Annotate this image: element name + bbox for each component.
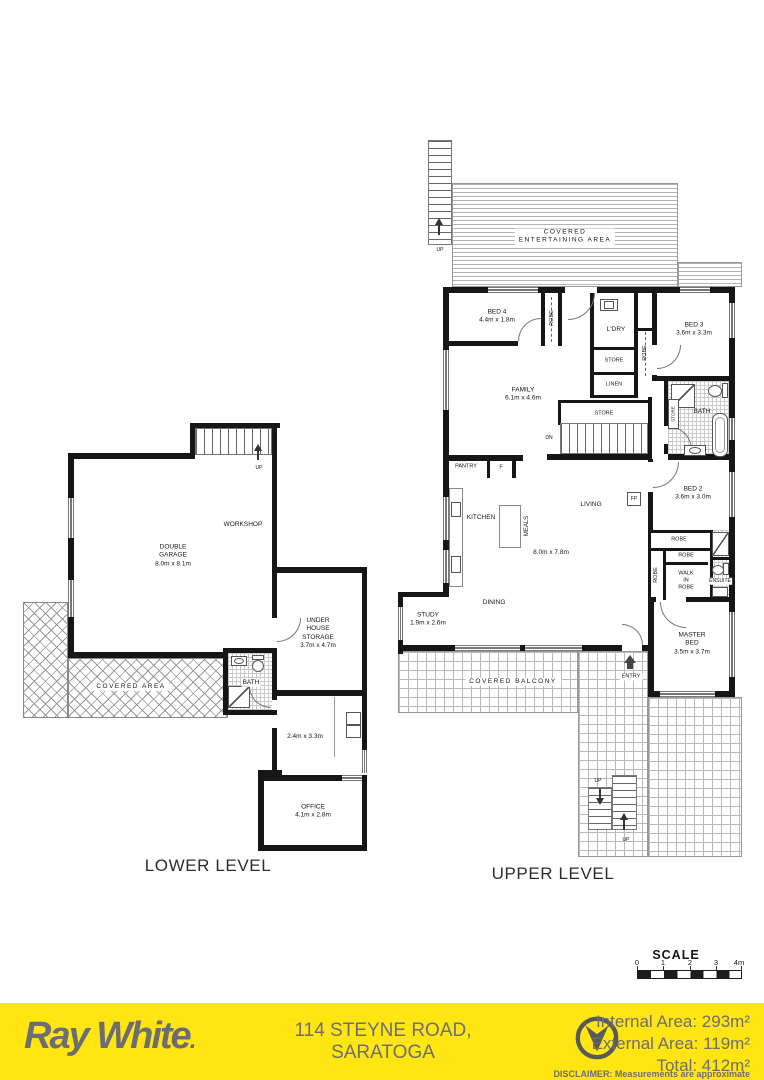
wall bbox=[443, 455, 523, 461]
window bbox=[680, 287, 710, 293]
down-arrow-stem bbox=[599, 789, 601, 798]
disclaimer-text: DISCLAIMER: Measurements are approximate bbox=[553, 1069, 750, 1079]
family-label: FAMILY 6.1m x 4.6m bbox=[505, 387, 541, 404]
wall bbox=[648, 530, 710, 533]
wall bbox=[686, 597, 735, 602]
window bbox=[443, 350, 449, 410]
wall bbox=[663, 562, 708, 565]
door-arc bbox=[657, 345, 681, 369]
wall bbox=[648, 602, 654, 691]
wall bbox=[258, 775, 342, 781]
wall bbox=[443, 341, 518, 346]
external-area: External Area: 119m² bbox=[592, 1034, 750, 1054]
wall bbox=[223, 648, 277, 653]
wall bbox=[558, 400, 650, 403]
wall bbox=[648, 397, 652, 454]
nook-line bbox=[334, 697, 335, 757]
pantry-label: PANTRY bbox=[455, 463, 477, 470]
garage-stairs-up-label: UP bbox=[256, 465, 263, 472]
wall bbox=[258, 845, 367, 851]
store-label: STORE bbox=[605, 357, 624, 364]
garage-label: DOUBLE GARAGE 8.0m x 8.1m bbox=[155, 543, 191, 568]
master-bed-label: MASTER BED 3.5m x 3.7m bbox=[674, 631, 710, 656]
window bbox=[729, 418, 735, 440]
wall bbox=[68, 453, 74, 498]
covered-balcony-area bbox=[648, 697, 742, 857]
office-label: OFFICE 4.1m x 2.8m bbox=[295, 804, 331, 821]
window bbox=[455, 645, 520, 651]
wall bbox=[648, 492, 653, 533]
under-house-storage-label: UNDER HOUSE STORAGE 3.7m x 4.7m bbox=[300, 617, 336, 651]
robe-label: ROBE bbox=[642, 345, 648, 361]
wall bbox=[648, 533, 651, 597]
brand-logo: Ray White. bbox=[24, 1015, 194, 1058]
wall bbox=[648, 691, 660, 697]
wall bbox=[272, 728, 277, 775]
fireplace-label: FP bbox=[631, 496, 637, 503]
toilet-bowl-icon bbox=[708, 385, 722, 397]
wall bbox=[638, 328, 652, 331]
linen-label: LINEN bbox=[606, 381, 622, 388]
wall bbox=[729, 287, 735, 303]
entry-arrow-stem bbox=[627, 663, 633, 669]
floorplan-page: UP COVERED ENTERTAINING AREA COVERED BAL… bbox=[0, 0, 764, 1080]
covered-entertaining-area-ext bbox=[678, 262, 742, 287]
wall bbox=[594, 372, 634, 375]
shower-icon bbox=[228, 686, 250, 708]
living-label: LIVING bbox=[580, 501, 601, 509]
robe-label: ROBE bbox=[671, 536, 687, 543]
wall bbox=[652, 293, 657, 345]
window bbox=[729, 612, 735, 677]
up-arrow-stem bbox=[438, 225, 440, 235]
door-arc bbox=[653, 462, 679, 488]
scale-title: SCALE bbox=[652, 947, 699, 963]
toilet-bowl-icon bbox=[712, 565, 724, 575]
window bbox=[729, 303, 735, 338]
kitchen-sink-icon bbox=[451, 502, 461, 517]
wall bbox=[590, 293, 594, 398]
door-arc bbox=[518, 318, 541, 341]
wall bbox=[710, 557, 735, 560]
robe-label: ROBE bbox=[653, 567, 659, 583]
window bbox=[525, 645, 582, 651]
window bbox=[398, 607, 403, 640]
window bbox=[660, 691, 715, 697]
wall bbox=[272, 573, 277, 618]
scale-bar bbox=[637, 970, 742, 979]
wall bbox=[715, 691, 735, 697]
wall bbox=[512, 461, 516, 478]
fridge-label: F bbox=[499, 464, 502, 471]
internal-area: Internal Area: 293m² bbox=[596, 1012, 750, 1032]
window bbox=[729, 472, 735, 517]
lower-level-title: LOWER LEVEL bbox=[145, 855, 272, 877]
laundry-label: L'DRY bbox=[607, 326, 625, 334]
deck-stairs bbox=[428, 140, 452, 245]
robe-label: ROBE bbox=[549, 310, 555, 326]
window bbox=[68, 580, 74, 617]
walk-in-robe-label: WALK IN ROBE bbox=[678, 570, 694, 591]
up-arrow-stem bbox=[257, 451, 259, 460]
basin-bowl bbox=[234, 658, 244, 664]
door-arc bbox=[622, 624, 643, 645]
wall bbox=[272, 690, 367, 696]
covered-area-label: COVERED AREA bbox=[92, 683, 169, 691]
wall bbox=[443, 287, 488, 293]
laundry-appliance-icon bbox=[346, 725, 361, 738]
covered-entertaining-label: COVERED ENTERTAINING AREA bbox=[515, 229, 615, 246]
window bbox=[362, 750, 367, 773]
wall bbox=[487, 461, 490, 478]
property-address: 114 STEYNE ROAD, SARATOGA bbox=[258, 1020, 508, 1064]
room-2433-label: 2.4m x 3.3m bbox=[287, 733, 323, 741]
door-arc bbox=[277, 618, 301, 642]
bath-label: BATH bbox=[242, 679, 261, 687]
brand-logo-dot: . bbox=[190, 1027, 195, 1054]
basin-bowl bbox=[689, 447, 701, 454]
up-arrow-stem bbox=[623, 820, 625, 830]
scale-tick-4: 4m bbox=[734, 958, 744, 968]
wall bbox=[68, 538, 74, 580]
down-arrow-icon bbox=[596, 798, 604, 805]
wall bbox=[68, 652, 228, 658]
balcony-stairs-up-label2: UP bbox=[623, 837, 630, 844]
wall bbox=[558, 293, 562, 346]
wall bbox=[663, 548, 666, 600]
entry-arrow-icon bbox=[624, 655, 636, 663]
entry-label: ENTRY bbox=[620, 673, 643, 680]
bath-label: BATH bbox=[694, 408, 711, 416]
address-line2: SARATOGA bbox=[258, 1042, 508, 1064]
workshop-label: WORKSHOP bbox=[224, 521, 263, 529]
covered-area bbox=[23, 602, 68, 718]
wall bbox=[272, 567, 367, 573]
bath-store-label: STORE bbox=[671, 406, 676, 421]
basin-icon bbox=[712, 587, 728, 597]
cooktop-icon bbox=[451, 556, 461, 573]
wall bbox=[258, 775, 264, 850]
wall bbox=[648, 548, 710, 551]
wall bbox=[597, 287, 680, 293]
wall bbox=[362, 567, 367, 750]
store-label: STORE bbox=[593, 410, 616, 417]
up-arrow-icon bbox=[254, 444, 262, 451]
window bbox=[68, 498, 74, 538]
wall bbox=[223, 710, 277, 715]
door-arc bbox=[660, 602, 686, 628]
ensuite-label: ENSUITE bbox=[708, 578, 732, 585]
wall bbox=[398, 592, 403, 607]
wall bbox=[362, 775, 367, 851]
meals-label: MEALS bbox=[524, 516, 530, 536]
up-arrow-icon bbox=[435, 218, 443, 225]
wall bbox=[634, 293, 638, 398]
island-bench bbox=[499, 505, 521, 548]
dining-label: DINING bbox=[483, 599, 506, 607]
window bbox=[342, 775, 362, 781]
wall bbox=[272, 648, 277, 693]
stairs-dn-label: DN bbox=[545, 435, 552, 442]
bed2-label: BED 2 3.6m x 3.0m bbox=[675, 486, 711, 503]
wall bbox=[443, 410, 449, 497]
kitchen-label: KITCHEN bbox=[467, 514, 496, 522]
wall bbox=[594, 395, 638, 398]
shower-icon bbox=[712, 532, 729, 556]
laundry-sink-bowl bbox=[604, 301, 614, 309]
study-label: STUDY 1.9m x 2.6m bbox=[410, 612, 446, 629]
balcony-stairs-up-label: UP bbox=[595, 778, 602, 785]
internal-stairs bbox=[560, 423, 648, 454]
wall bbox=[272, 693, 277, 700]
window bbox=[488, 287, 538, 293]
bathtub-inner bbox=[715, 417, 725, 453]
up-arrow-icon bbox=[620, 813, 628, 820]
wall bbox=[594, 347, 634, 350]
toilet-bowl-icon bbox=[252, 660, 264, 672]
brand-logo-text: Ray White bbox=[24, 1015, 190, 1057]
wall bbox=[582, 645, 622, 651]
footer-bar: Ray White. 114 STEYNE ROAD, SARATOGA Int… bbox=[0, 1003, 764, 1080]
covered-balcony-label: COVERED BALCONY bbox=[465, 678, 561, 686]
deck-stairs-up-label: UP bbox=[437, 247, 444, 254]
laundry-appliance-icon bbox=[346, 712, 361, 725]
toilet-tank-icon bbox=[722, 383, 728, 398]
robe-label: ROBE bbox=[678, 552, 694, 559]
wall bbox=[547, 454, 652, 460]
address-line1: 114 STEYNE ROAD, bbox=[258, 1020, 508, 1042]
upper-level-title: UPPER LEVEL bbox=[492, 863, 615, 885]
bed3-label: BED 3 3.6m x 3.3m bbox=[676, 322, 712, 339]
wall bbox=[272, 423, 277, 573]
bed4-label: BED 4 4.4m x 1.8m bbox=[479, 309, 515, 326]
wall bbox=[558, 400, 561, 425]
wall bbox=[398, 592, 449, 597]
wall bbox=[398, 645, 455, 651]
wall bbox=[541, 293, 545, 346]
living-dims-label: 8.0m x 7.8m bbox=[533, 549, 569, 557]
wall bbox=[68, 453, 195, 459]
wall bbox=[657, 376, 735, 381]
